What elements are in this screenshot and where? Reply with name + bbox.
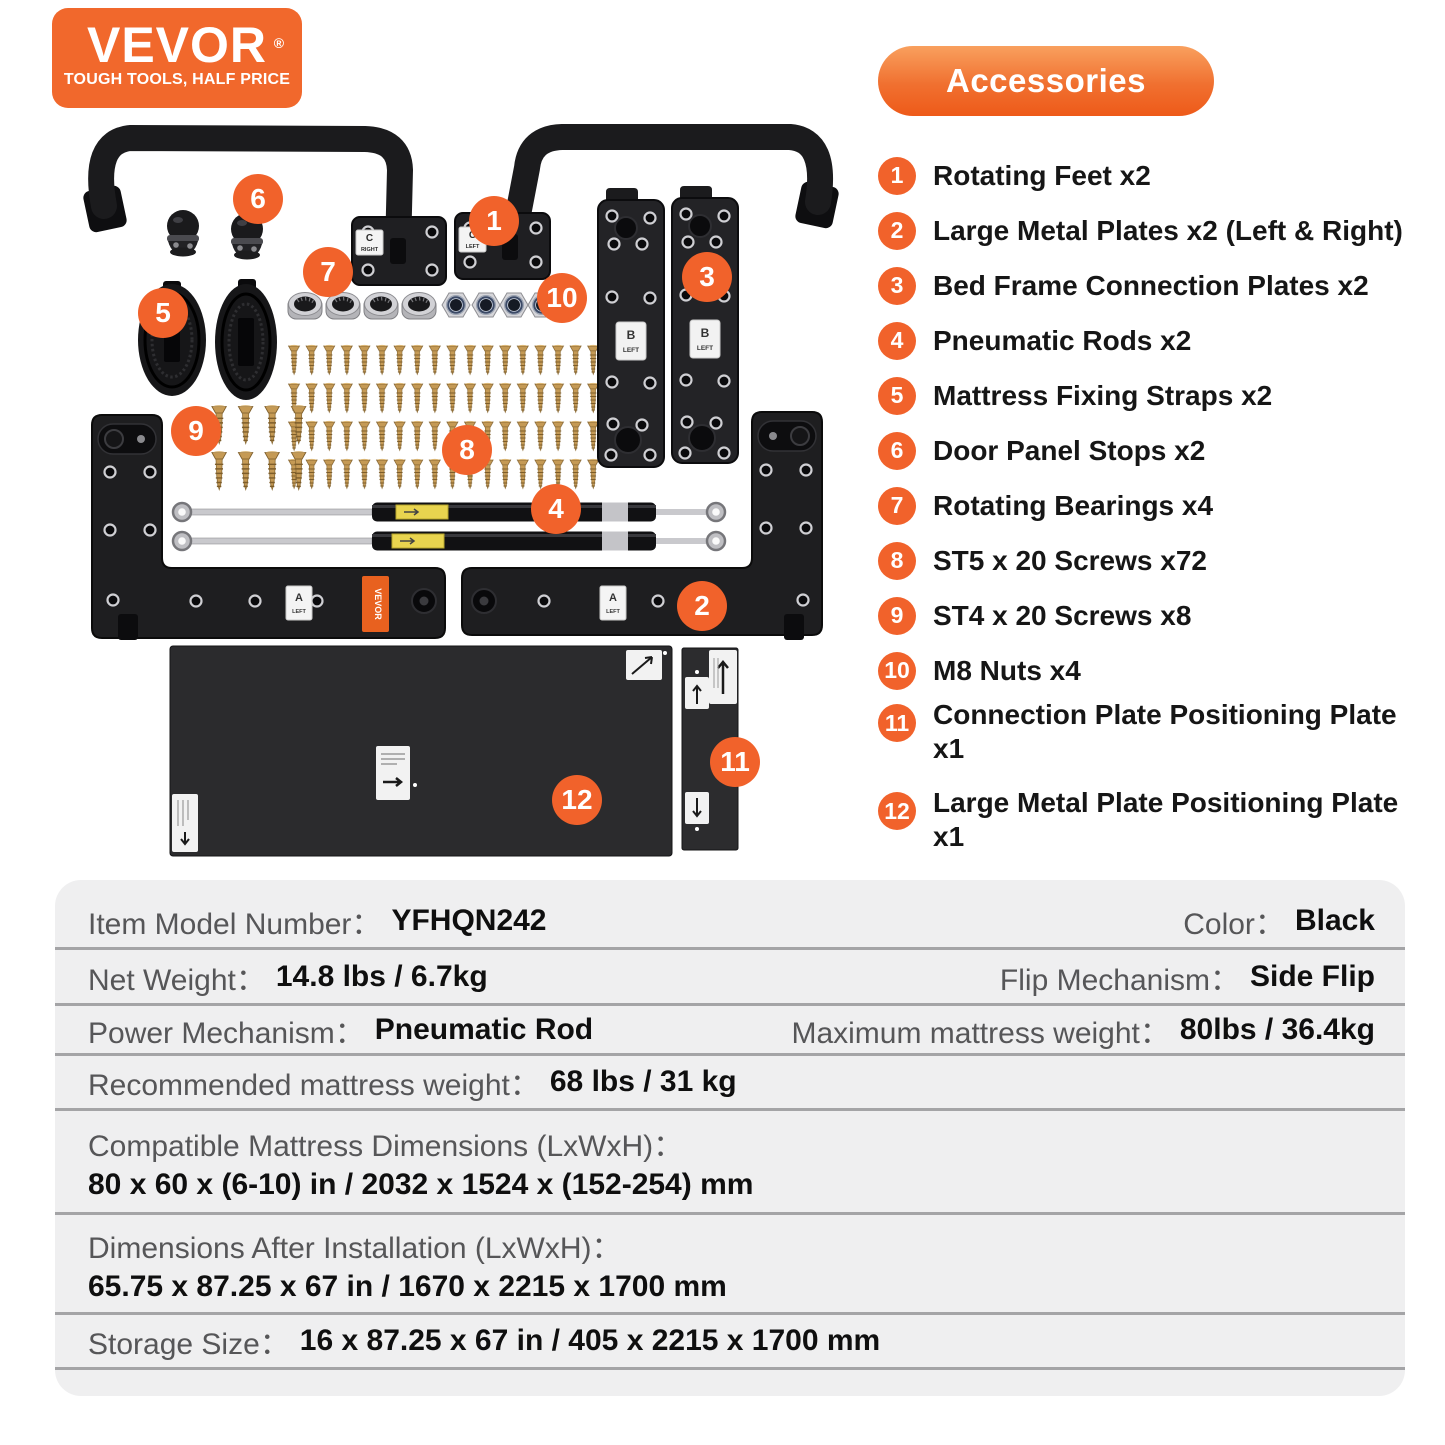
diagram-callout-2: 2 xyxy=(677,581,727,631)
spec-label: Power Mechanism： xyxy=(88,1008,365,1052)
spec-label: Compatible Mattress Dimensions (LxWxH)： xyxy=(88,1121,683,1165)
diagram-callout-8: 8 xyxy=(442,425,492,475)
spec-table: Item Model Number： YFHQN242 Color： Black… xyxy=(55,880,1405,1396)
rotating-bearings-photo xyxy=(288,293,436,320)
spec-row-mattress-dimensions: Compatible Mattress Dimensions (LxWxH)： … xyxy=(55,1111,1405,1215)
spec-value: 68 lbs / 31 kg xyxy=(550,1065,737,1099)
spec-value: Side Flip xyxy=(1250,960,1375,994)
spec-value: YFHQN242 xyxy=(391,904,546,938)
spec-label: Item Model Number： xyxy=(88,899,381,943)
spec-row-recommended-weight: Recommended mattress weight： 68 lbs / 31… xyxy=(55,1056,1405,1111)
spec-row-installed-dimensions: Dimensions After Installation (LxWxH)： 6… xyxy=(55,1215,1405,1315)
connection-plates-photo: B LEFT B LEFT xyxy=(598,186,738,467)
svg-text:LEFT: LEFT xyxy=(466,244,480,250)
svg-text:C: C xyxy=(366,233,373,244)
svg-text:A: A xyxy=(609,592,617,604)
diagram-callout-6: 6 xyxy=(233,174,283,224)
spec-label: Color： xyxy=(1183,899,1285,943)
pneumatic-rods-photo xyxy=(173,503,725,551)
diagram-callout-10: 10 xyxy=(537,273,587,323)
positioning-panel-photo xyxy=(170,646,672,856)
spec-value: 65.75 x 87.25 x 67 in / 1670 x 2215 x 17… xyxy=(88,1270,727,1304)
screws-st5-photo xyxy=(287,344,604,496)
svg-text:VEVOR: VEVOR xyxy=(373,588,383,620)
spec-value: 80 x 60 x (6-10) in / 2032 x 1524 x (152… xyxy=(88,1168,753,1202)
spec-value: 80lbs / 36.4kg xyxy=(1180,1013,1375,1047)
spec-label: Flip Mechanism： xyxy=(1000,955,1240,999)
spec-label: Net Weight： xyxy=(88,955,266,999)
svg-text:LEFT: LEFT xyxy=(623,347,639,354)
spec-label: Storage Size： xyxy=(88,1319,290,1363)
spec-row-mechanism: Power Mechanism： Pneumatic Rod Maximum m… xyxy=(55,1006,1405,1056)
diagram-callout-1: 1 xyxy=(469,196,519,246)
svg-text:LEFT: LEFT xyxy=(697,345,713,352)
svg-text:A: A xyxy=(295,592,303,604)
spec-label: Maximum mattress weight： xyxy=(791,1008,1169,1052)
diagram-callout-5: 5 xyxy=(138,288,188,338)
spec-value: 14.8 lbs / 6.7kg xyxy=(276,960,488,994)
svg-text:LEFT: LEFT xyxy=(292,609,306,615)
svg-text:RIGHT: RIGHT xyxy=(361,247,379,253)
spec-value: Pneumatic Rod xyxy=(375,1013,593,1047)
diagram-callout-12: 12 xyxy=(552,775,602,825)
spec-row-model: Item Model Number： YFHQN242 Color： Black xyxy=(55,880,1405,950)
diagram-callout-11: 11 xyxy=(710,737,760,787)
spec-value: Black xyxy=(1295,904,1375,938)
mounting-brackets-photo: C RIGHT C LEFT xyxy=(352,213,550,285)
screws-st4-photo xyxy=(210,404,316,496)
svg-text:B: B xyxy=(701,326,710,340)
svg-text:LEFT: LEFT xyxy=(606,609,620,615)
spec-row-weight: Net Weight： 14.8 lbs / 6.7kg Flip Mechan… xyxy=(55,950,1405,1006)
diagram-callout-7: 7 xyxy=(303,247,353,297)
diagram-callout-9: 9 xyxy=(171,406,221,456)
diagram-callout-4: 4 xyxy=(531,484,581,534)
svg-text:B: B xyxy=(627,328,636,342)
spec-value: 16 x 87.25 x 67 in / 405 x 2215 x 1700 m… xyxy=(300,1324,880,1358)
product-infographic: { "logo": { "brand": "VEVOR", "registere… xyxy=(0,0,1445,1445)
spec-label: Dimensions After Installation (LxWxH)： xyxy=(88,1223,622,1267)
spec-row-storage-size: Storage Size： 16 x 87.25 x 67 in / 405 x… xyxy=(55,1315,1405,1370)
spec-label: Recommended mattress weight： xyxy=(88,1060,540,1104)
diagram-callout-3: 3 xyxy=(682,252,732,302)
